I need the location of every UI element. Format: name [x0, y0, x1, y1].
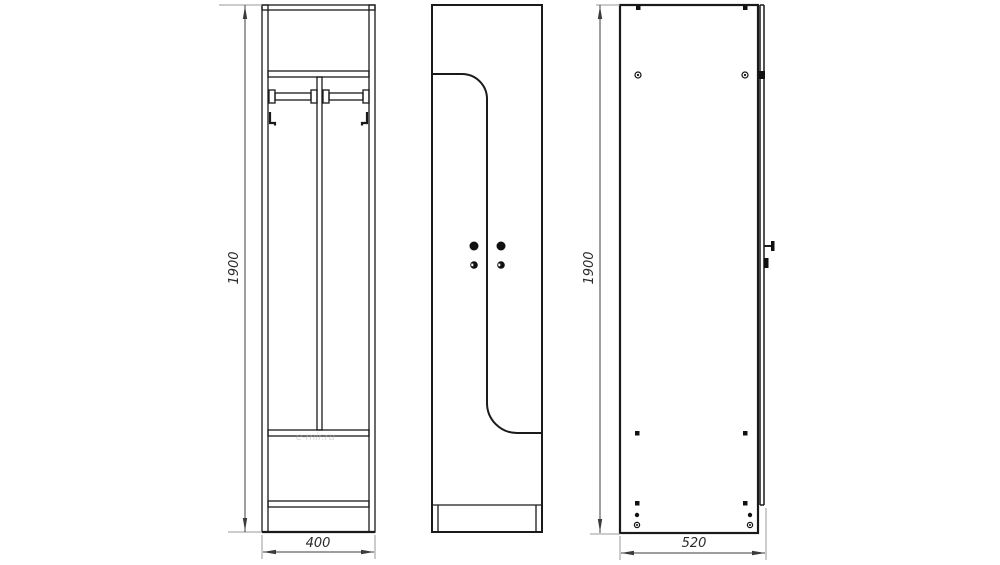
- wardrobe-drawing-canvas: e-mir.ru: [0, 0, 1000, 565]
- width-dimension: 400: [262, 535, 375, 559]
- arrowhead-up: [243, 6, 247, 19]
- screw-mark: [635, 501, 640, 506]
- side-view: [620, 5, 775, 533]
- screw-mark: [749, 524, 751, 526]
- screw-mark: [743, 6, 748, 11]
- height-dimension-left: 1900: [219, 5, 262, 532]
- side-depth-label: 520: [682, 536, 707, 551]
- rail-bracket: [269, 90, 275, 103]
- technical-drawing-page: e-mir.ru: [0, 0, 1000, 565]
- door-handle-side: [764, 241, 775, 251]
- door-knob-right: [497, 242, 506, 251]
- front-width-label: 400: [306, 536, 331, 551]
- arrowhead-up: [598, 6, 602, 19]
- rail-bracket: [323, 90, 329, 103]
- door-split-curve: [432, 74, 542, 433]
- height-dimension-right: 1900: [582, 5, 620, 534]
- screw-mark: [743, 431, 748, 436]
- watermark-text: e-mir.ru: [296, 432, 335, 443]
- rail-bracket: [311, 90, 317, 103]
- hinge-marker: [759, 71, 765, 79]
- arrowhead-down: [598, 519, 602, 532]
- arrowhead-left: [263, 550, 276, 554]
- rail-bar: [329, 93, 363, 100]
- screw-mark: [635, 513, 639, 517]
- left-side-panel: [262, 5, 268, 532]
- screw-mark: [636, 524, 638, 526]
- front-height-label: 1900: [227, 251, 242, 284]
- screw-mark: [744, 74, 746, 76]
- arrowhead-down: [243, 518, 247, 531]
- front-view-open: [262, 5, 375, 532]
- coat-hook-left: [270, 112, 275, 126]
- screw-mark: [636, 6, 641, 11]
- side-height-label: 1900: [582, 251, 597, 284]
- hanger-rail-left: [269, 90, 317, 103]
- front-view-doors: [432, 5, 542, 532]
- screw-mark: [635, 431, 640, 436]
- rail-bar: [275, 93, 311, 100]
- door-lock-left: [470, 261, 478, 269]
- coat-hook-right: [362, 112, 367, 126]
- screw-marks: [634, 6, 752, 528]
- rail-bracket: [363, 90, 369, 103]
- screw-mark: [748, 513, 752, 517]
- arrowhead-left: [621, 551, 634, 555]
- bottom-shelf: [268, 501, 369, 507]
- door-lock-side: [764, 258, 769, 268]
- screw-mark: [637, 74, 639, 76]
- top-panel: [262, 5, 375, 10]
- door-knob-left: [470, 242, 479, 251]
- door-lock-right: [497, 261, 505, 269]
- screw-mark: [743, 501, 748, 506]
- right-side-panel: [369, 5, 375, 532]
- arrowhead-right: [752, 551, 765, 555]
- hanger-rail-right: [323, 90, 369, 103]
- top-shelf: [268, 71, 369, 77]
- center-divider: [317, 77, 322, 430]
- arrowhead-right: [361, 550, 374, 554]
- side-panel-outline: [620, 5, 758, 533]
